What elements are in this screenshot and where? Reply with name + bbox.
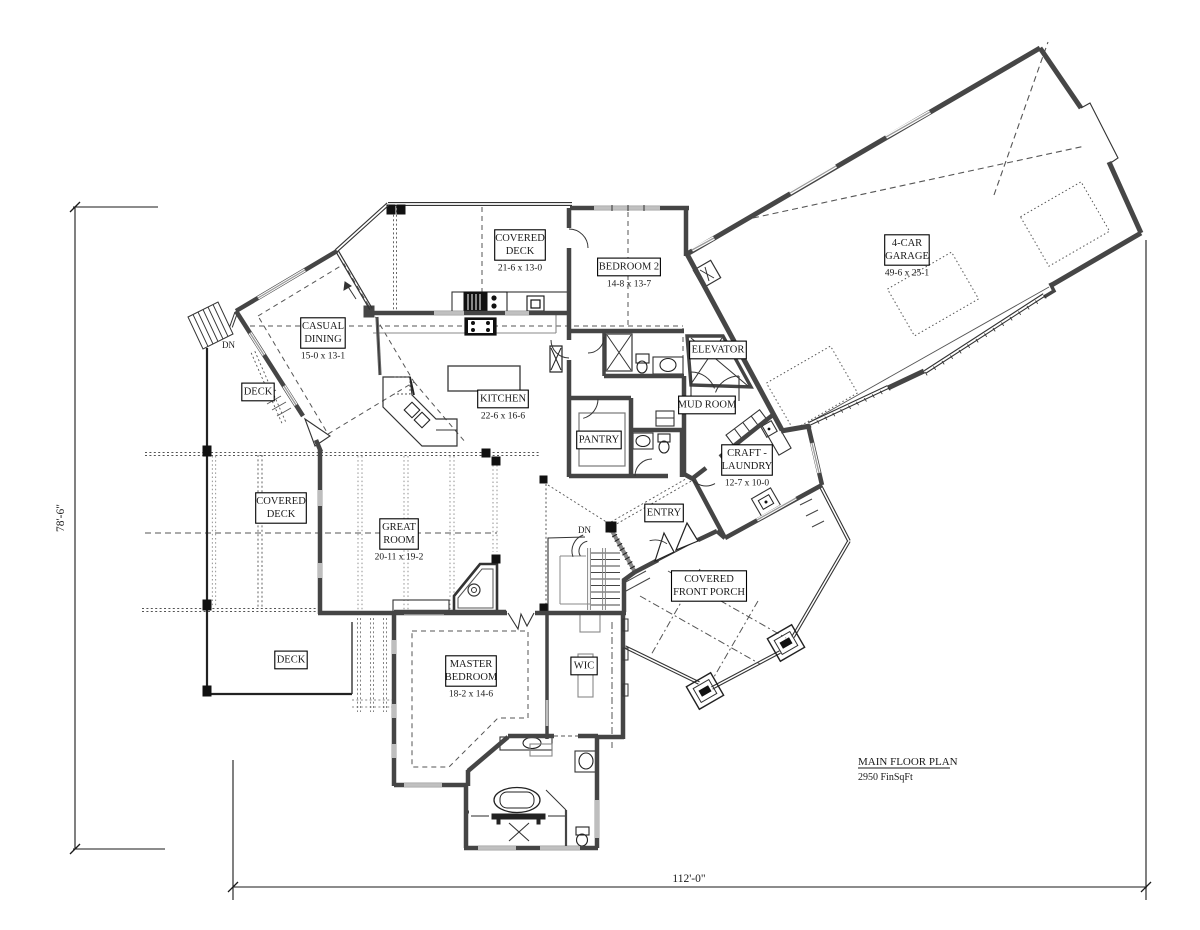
svg-text:DINING: DINING [304, 334, 342, 345]
svg-text:112'-0": 112'-0" [672, 873, 705, 885]
svg-text:BEDROOM 2: BEDROOM 2 [599, 262, 659, 273]
svg-text:COVERED: COVERED [684, 574, 734, 585]
svg-text:14-8 x 13-7: 14-8 x 13-7 [607, 279, 652, 289]
svg-text:DECK: DECK [277, 655, 306, 666]
svg-text:20-11 x 19-2: 20-11 x 19-2 [375, 553, 424, 563]
svg-text:GARAGE: GARAGE [885, 251, 929, 262]
svg-text:GREAT: GREAT [382, 522, 416, 533]
svg-text:12-7 x 10-0: 12-7 x 10-0 [725, 479, 770, 489]
svg-text:COVERED: COVERED [495, 233, 545, 244]
svg-text:MUD ROOM: MUD ROOM [678, 400, 737, 411]
svg-text:2950 FinSqFt: 2950 FinSqFt [858, 772, 913, 783]
svg-text:PANTRY: PANTRY [579, 435, 620, 446]
svg-text:DECK: DECK [506, 246, 535, 257]
svg-text:MAIN FLOOR PLAN: MAIN FLOOR PLAN [858, 756, 958, 768]
svg-text:DN: DN [222, 340, 235, 350]
svg-text:BEDROOM: BEDROOM [445, 672, 498, 683]
svg-text:49-6 x 25-1: 49-6 x 25-1 [885, 269, 930, 279]
svg-text:MASTER: MASTER [450, 659, 493, 670]
svg-text:ROOM: ROOM [383, 535, 415, 546]
svg-text:22-6 x 16-6: 22-6 x 16-6 [481, 411, 526, 421]
svg-text:21-6 x 13-0: 21-6 x 13-0 [498, 264, 543, 274]
svg-text:FRONT PORCH: FRONT PORCH [673, 587, 745, 598]
svg-text:18-2 x 14-6: 18-2 x 14-6 [449, 690, 494, 700]
svg-text:15-0 x 13-1: 15-0 x 13-1 [301, 352, 346, 362]
svg-text:ELEVATOR: ELEVATOR [692, 345, 745, 356]
svg-text:DECK: DECK [244, 387, 273, 398]
svg-text:ENTRY: ENTRY [647, 508, 682, 519]
svg-text:78'-6": 78'-6" [55, 504, 67, 532]
svg-text:4-CAR: 4-CAR [892, 238, 922, 249]
svg-text:CRAFT -: CRAFT - [727, 448, 767, 459]
svg-text:DN: DN [578, 525, 591, 535]
svg-text:LAUNDRY: LAUNDRY [722, 461, 773, 472]
svg-text:CASUAL: CASUAL [302, 321, 344, 332]
svg-text:COVERED: COVERED [256, 496, 306, 507]
svg-text:KITCHEN: KITCHEN [480, 394, 526, 405]
svg-text:WIC: WIC [574, 661, 594, 672]
svg-text:DECK: DECK [267, 509, 296, 520]
